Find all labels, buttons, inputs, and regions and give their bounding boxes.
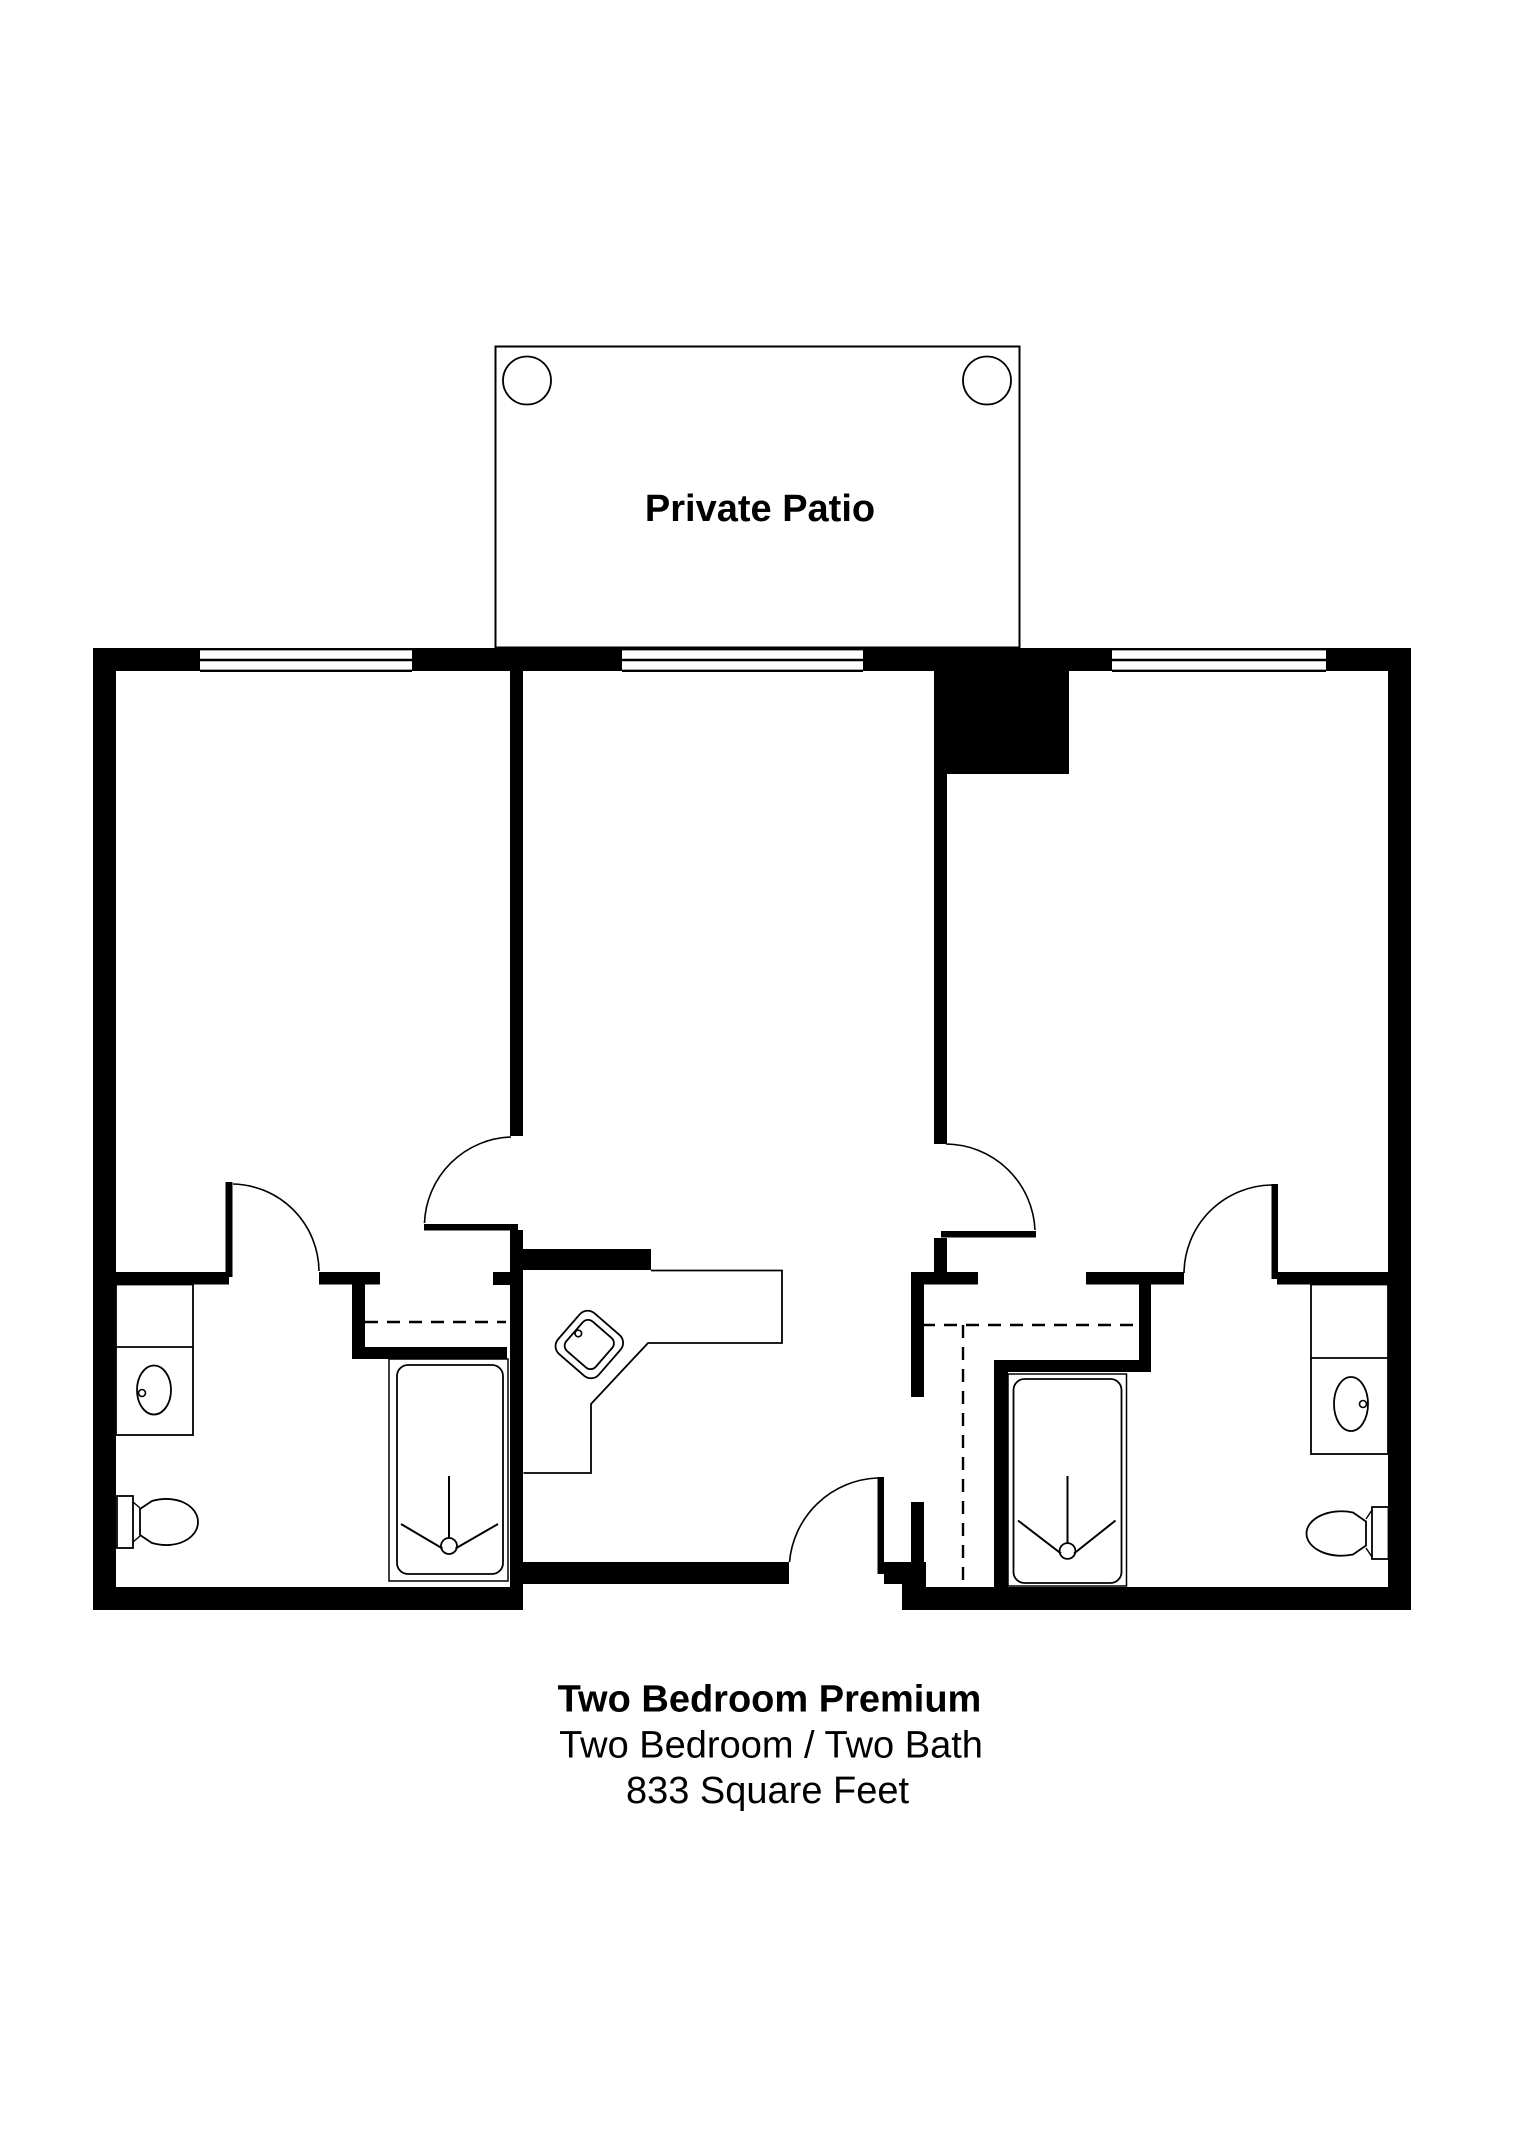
svg-text:Two Bedroom / Two Bath: Two Bedroom / Two Bath bbox=[559, 1725, 983, 1767]
svg-text:833 Square Feet: 833 Square Feet bbox=[626, 1770, 910, 1812]
svg-text:Private Patio: Private Patio bbox=[645, 488, 875, 530]
svg-text:Two Bedroom Premium: Two Bedroom Premium bbox=[558, 1679, 982, 1721]
